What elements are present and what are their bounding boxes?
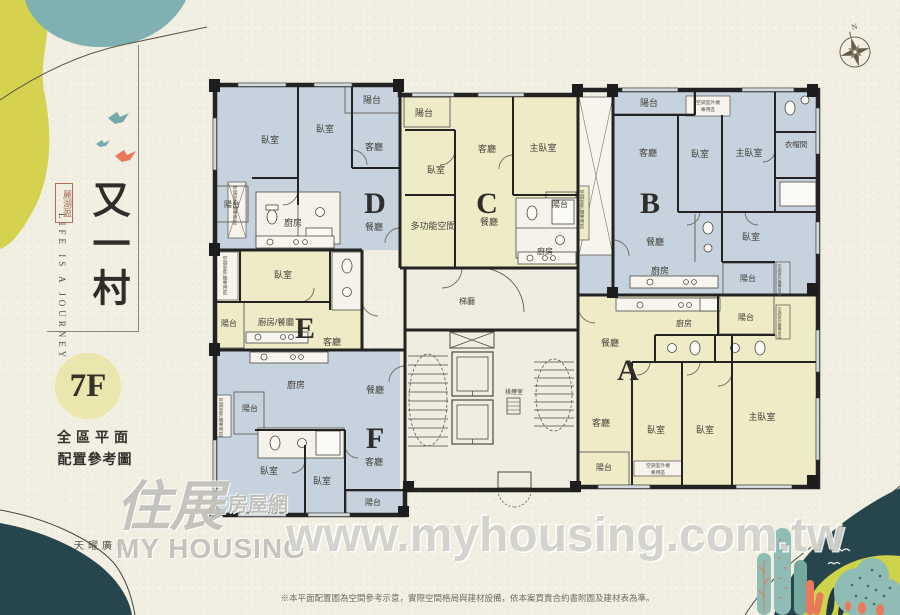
artwork-canvas: N	[0, 0, 900, 615]
unit-letter-b: B	[640, 187, 660, 220]
room-label: 陽台	[365, 497, 381, 507]
room-label: 排煙室	[505, 388, 523, 396]
compass-n-label: N	[850, 22, 858, 32]
ac-label: 空調室外機專用區	[222, 255, 227, 295]
room-label: 餐廳	[365, 221, 383, 232]
floor-plan: D C B A E F 臥室 臥室 陽台 客廳 陽台 廚房 餐廳 陽台 臥室 客…	[209, 79, 820, 517]
ac-label: 空調室外機專用區	[778, 306, 783, 340]
unit-letter-a: A	[617, 354, 639, 387]
teal-blob	[25, 0, 186, 47]
room-label: 臥室	[696, 424, 714, 435]
ac-label: 空調室外機專用區	[232, 185, 237, 225]
ac-label: 空調室外機	[696, 99, 720, 106]
room-label: 主臥室	[529, 142, 556, 153]
divider-vertical	[138, 45, 139, 332]
room-label: 陽台	[242, 403, 258, 413]
unit-letter-c: C	[476, 187, 498, 220]
floor-badge: 7F	[55, 353, 121, 419]
unit-letter-f: F	[366, 422, 384, 455]
room-label: 客廳	[365, 456, 383, 467]
room-label: 廚房/餐廳	[258, 317, 295, 327]
room-label: 臥室	[316, 123, 334, 134]
room-label: 主臥室	[748, 411, 775, 422]
room-label: 主臥室	[735, 147, 762, 158]
room-label: 餐廳	[366, 384, 384, 395]
room-label: 多功能空間	[410, 220, 455, 231]
room-label: 臥室	[261, 134, 279, 145]
room-label: 廚房	[537, 246, 553, 256]
ac-label: 空調室外機	[646, 462, 670, 469]
room-label: 餐廳	[480, 216, 498, 227]
room-label: 陽台	[363, 94, 381, 105]
room-label: 客廳	[365, 141, 383, 152]
developer-seal: 麗湖盈	[55, 183, 73, 223]
plan-subtitle-line1: 全區平面	[48, 427, 142, 447]
room-label: 臥室	[691, 148, 709, 159]
ac-label: 空調室外機專用區	[579, 189, 584, 229]
room-label: 臥室	[647, 424, 665, 435]
room-label: 廚房	[676, 318, 692, 328]
room-label: 臥室	[274, 269, 292, 280]
decor-bottom-left	[0, 510, 135, 615]
ac-label: 專用區	[701, 106, 716, 113]
room-label: 客廳	[478, 143, 496, 154]
compass-icon: N	[833, 20, 873, 70]
disclaimer-footnote: ※本平面配置圖為空間參考示意，實際空間格局與建材設備，依本案買賣合約書附圖及建材…	[235, 592, 700, 604]
room-label: 衣帽間	[785, 139, 808, 149]
room-label: 陽台	[596, 462, 612, 472]
ac-label: 空調室外機專用區	[778, 263, 783, 297]
room-label: 客廳	[592, 417, 610, 428]
room-label: 梯廳	[459, 296, 475, 306]
flyer-page: { "sidebar": { "tagline": "LIFE IS A JOU…	[0, 0, 900, 615]
room-label: 陽台	[415, 107, 433, 118]
project-title: 又一村	[80, 180, 135, 312]
unit-letter-e: E	[295, 312, 315, 345]
room-label: 臥室	[427, 164, 445, 175]
room-label: 臥室	[313, 475, 331, 486]
room-label: 客廳	[323, 336, 341, 347]
bird-icon	[96, 112, 129, 147]
brand-tagline: LIFE IS A JOURNEY	[57, 213, 67, 361]
room-label: 陽台	[738, 312, 754, 322]
room-label: 廚房	[287, 379, 305, 390]
room-label: 陽台	[221, 318, 237, 328]
room-label: 餐廳	[646, 236, 664, 247]
ac-label: 空調室外機專用區	[218, 397, 223, 437]
unit-letter-d: D	[364, 187, 386, 220]
room-label: 客廳	[639, 147, 657, 158]
floor-label: 7F	[70, 368, 107, 405]
room-label: 臥室	[260, 465, 278, 476]
room-label: 廚房	[284, 217, 302, 228]
room-label: 陽台	[740, 273, 756, 283]
yellow-blob	[0, 0, 49, 249]
core-area	[400, 268, 578, 490]
bird-icon	[115, 150, 136, 162]
room-label: 臥室	[742, 231, 760, 242]
room-label: 餐廳	[601, 337, 619, 348]
divider-horizontal	[47, 331, 138, 332]
room-label: 陽台	[640, 97, 658, 108]
ac-label: 專用區	[651, 469, 666, 476]
room-label: 廚房	[651, 265, 669, 276]
room-label: 陽台	[552, 199, 568, 209]
decor-bottom-right	[745, 486, 900, 615]
plan-subtitle-line2: 配置參考圖	[44, 449, 146, 469]
ad-agency: 天曜廣告	[60, 537, 144, 552]
